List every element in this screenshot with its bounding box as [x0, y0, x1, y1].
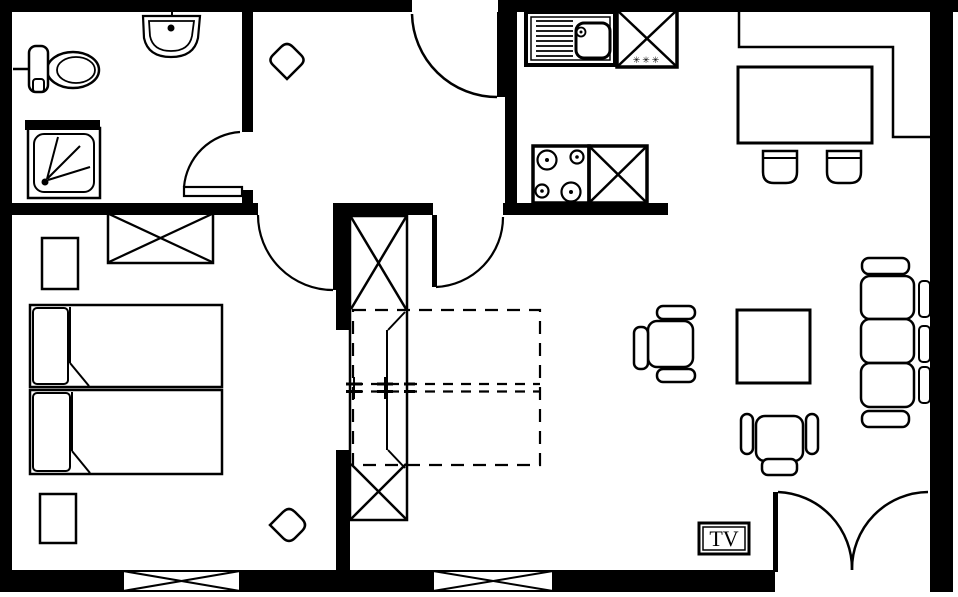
tv-unit: TV — [699, 523, 749, 554]
balcony-door-left-leaf — [773, 492, 778, 572]
bathroom — [13, 12, 200, 198]
sofa-back-cushion — [919, 367, 930, 403]
single-bed — [30, 305, 222, 387]
dining-table — [738, 67, 872, 143]
toilet — [13, 46, 99, 92]
bedroom-door — [258, 215, 339, 290]
armchair — [634, 306, 695, 382]
living-room: TV — [634, 258, 930, 554]
kitchen-sink-unit — [526, 12, 615, 65]
bedroom-window — [123, 571, 240, 591]
living-room-door — [432, 215, 503, 287]
wall-kitchen-vertical — [505, 12, 517, 215]
doors — [184, 12, 928, 572]
wall-bottom — [0, 570, 775, 592]
sofa-back-cushion — [919, 281, 930, 317]
wardrobe — [108, 213, 213, 263]
entry-door — [412, 12, 505, 97]
wall-bathroom-right-upper — [242, 12, 253, 132]
balcony-door-right-swing — [852, 492, 928, 570]
entry-door-leaf — [497, 12, 505, 97]
bed-pillow — [33, 393, 70, 471]
wall-closet-left-lower — [336, 450, 350, 570]
bathroom-door-leaf — [184, 187, 242, 196]
sofa-armrest — [862, 411, 909, 427]
bedroom — [30, 213, 305, 543]
nightstand — [40, 494, 76, 543]
armchair-seat — [756, 416, 803, 461]
kitchen-cabinet — [589, 146, 647, 203]
fold-out-bed-outline — [353, 310, 540, 465]
bedroom-door-swing — [258, 215, 333, 290]
washbasin-faucet — [168, 25, 175, 32]
armchair — [741, 414, 818, 475]
sofa-armrest — [862, 258, 909, 274]
wall-right — [930, 0, 953, 592]
nightstand — [42, 238, 78, 289]
single-bed — [30, 390, 222, 474]
shower-drain — [42, 179, 49, 186]
stove — [533, 146, 589, 203]
hall-lamp-symbol — [271, 44, 304, 79]
living-room-door-swing — [436, 217, 503, 287]
bedroom-door-leaf — [333, 215, 339, 290]
hall — [271, 44, 304, 79]
corner-bench — [739, 12, 930, 137]
sofa-back-cushion — [919, 326, 930, 362]
dining-chair — [763, 151, 797, 183]
entry-door-swing — [412, 14, 497, 97]
tv-label: TV — [709, 526, 738, 551]
balcony-double-door — [773, 492, 928, 572]
freezer-marks: ✳✳✳ — [633, 56, 662, 66]
wall-kitchen-bottom — [503, 203, 668, 215]
bedroom-lamp-symbol — [270, 509, 305, 541]
dining-chair — [827, 151, 861, 183]
bed-hinge-marks — [346, 377, 415, 399]
floor-plan: ✳✳✳ — [0, 0, 958, 597]
bathroom-door — [184, 132, 242, 196]
blanket-fold — [70, 363, 89, 386]
balcony-door-left-swing — [778, 492, 852, 570]
wall-left — [0, 0, 12, 592]
kitchen: ✳✳✳ — [526, 10, 677, 203]
armchair-seat — [648, 321, 693, 367]
living-room-window — [433, 571, 553, 591]
wall-closet-top — [333, 203, 433, 215]
sink-drainboard — [536, 21, 573, 56]
wall-top-left — [0, 0, 412, 12]
bed-pillow — [33, 308, 68, 384]
shower — [28, 128, 100, 198]
coffee-table — [737, 310, 810, 383]
washbasin — [143, 12, 200, 57]
dining-area — [738, 12, 930, 183]
living-room-door-leaf — [432, 215, 437, 287]
toilet-tank — [29, 46, 48, 92]
bathroom-door-swing — [184, 132, 240, 187]
wall-bed-closet — [346, 216, 540, 520]
blanket-fold — [72, 451, 90, 473]
freezer-cabinet: ✳✳✳ — [617, 10, 677, 67]
sofa — [861, 258, 930, 427]
